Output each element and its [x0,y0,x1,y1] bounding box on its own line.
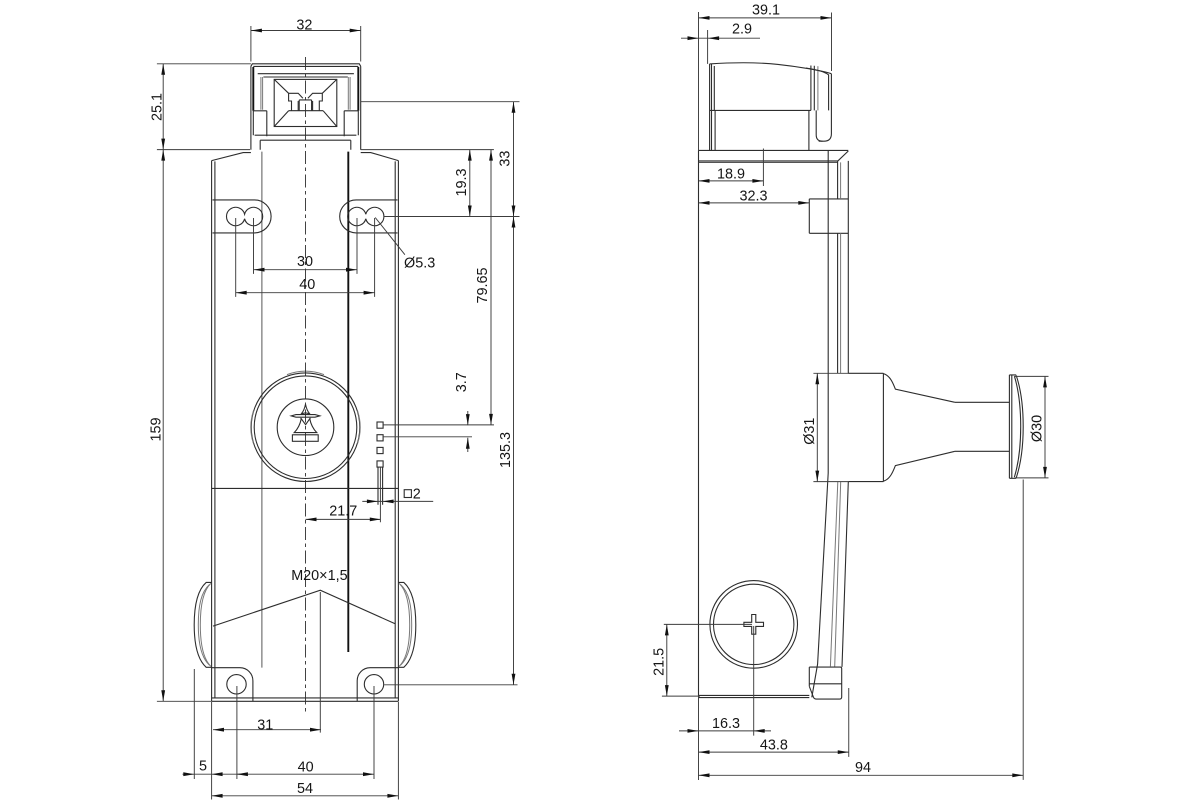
svg-text:M20×1,5: M20×1,5 [291,568,347,584]
svg-text:94: 94 [855,760,871,776]
svg-text:21.5: 21.5 [652,648,668,676]
svg-text:18.9: 18.9 [717,166,745,182]
svg-text:3.7: 3.7 [454,372,470,392]
svg-text:43.8: 43.8 [760,737,788,753]
svg-text:19.3: 19.3 [454,168,470,196]
svg-text:16.3: 16.3 [712,716,740,732]
svg-text:32.3: 32.3 [739,188,767,204]
svg-text:Ø31: Ø31 [802,418,818,445]
svg-text:21.7: 21.7 [329,503,357,519]
svg-text:25.1: 25.1 [150,93,166,121]
svg-text:2.9: 2.9 [732,22,752,38]
svg-text:5: 5 [199,758,207,774]
svg-text:135.3: 135.3 [498,432,514,468]
svg-text:2: 2 [413,486,421,502]
svg-text:30: 30 [297,254,313,270]
svg-text:40: 40 [299,277,315,293]
svg-text:32: 32 [296,17,312,33]
svg-text:159: 159 [149,417,165,441]
svg-text:40: 40 [298,760,314,776]
svg-text:54: 54 [297,781,313,797]
svg-text:79.65: 79.65 [475,267,491,303]
svg-text:Ø30: Ø30 [1030,415,1046,442]
svg-text:39.1: 39.1 [752,3,780,19]
svg-text:33: 33 [498,151,514,167]
svg-text:Ø5.3: Ø5.3 [404,256,435,272]
svg-text:31: 31 [257,718,273,734]
